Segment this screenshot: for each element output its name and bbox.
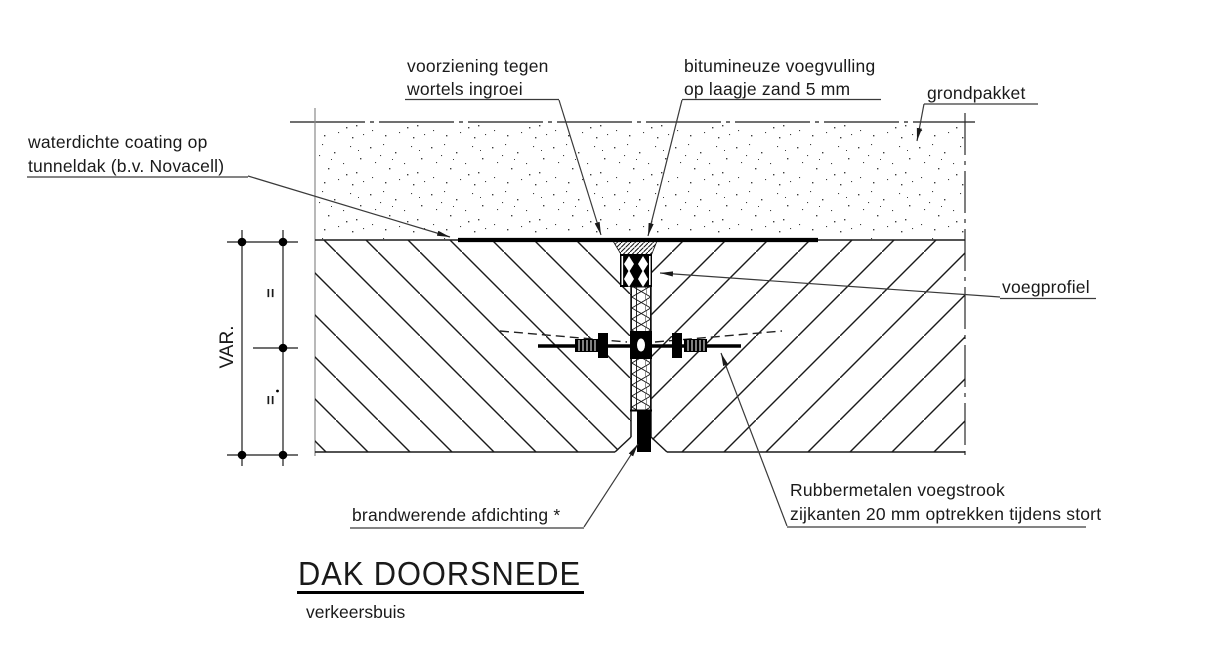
bolt-nut-right [672, 333, 682, 358]
svg-text:grondpakket: grondpakket [927, 83, 1026, 103]
svg-text:voegprofiel: voegprofiel [1002, 277, 1090, 297]
label-bitumen: bitumineuze voegvulling op laagje zand 5… [682, 56, 881, 100]
svg-text:bitumineuze voegvulling: bitumineuze voegvulling [684, 56, 875, 76]
dimension-var: VAR. = = [217, 230, 298, 466]
label-joint-profile: voegprofiel [1000, 277, 1096, 299]
equal-mark-bottom: = [261, 395, 278, 404]
clamp-hole [637, 339, 645, 352]
fire-seal [630, 411, 652, 453]
svg-text:op laagje zand 5 mm: op laagje zand 5 mm [684, 79, 850, 99]
svg-text:wortels ingroei: wortels ingroei [406, 79, 523, 99]
technical-drawing-roof-section: VAR. = = voorziening tegen wortels ingro… [0, 0, 1217, 659]
title-block: DAK DOORSNEDE verkeersbuis [297, 555, 584, 622]
label-fire-seal: brandwerende afdichting * [350, 505, 584, 528]
svg-text:zijkanten 20 mm optrekken tijd: zijkanten 20 mm optrekken tijdens stort [790, 504, 1101, 524]
dimension-var-label: VAR. [217, 326, 238, 369]
label-rubber-strip: Rubbermetalen voegstrook zijkanten 20 mm… [787, 480, 1101, 527]
label-waterproof-coating: waterdichte coating op tunneldak (b.v. N… [27, 132, 248, 177]
label-ground-package: grondpakket [924, 83, 1038, 104]
bolt-nut-left [598, 333, 608, 358]
svg-text:brandwerende afdichting *: brandwerende afdichting * [352, 505, 560, 525]
equal-mark-top: = [261, 288, 278, 297]
leader-fire-seal [584, 444, 638, 527]
svg-text:tunneldak (b.v. Novacell): tunneldak (b.v. Novacell) [28, 156, 224, 176]
label-root-barrier: voorziening tegen wortels ingroei [405, 56, 559, 100]
svg-text:voorziening tegen: voorziening tegen [407, 56, 549, 76]
svg-text:waterdichte coating op: waterdichte coating op [27, 132, 208, 152]
drawing-canvas: VAR. = = voorziening tegen wortels ingro… [0, 0, 1217, 659]
joint-profile-block [620, 254, 652, 287]
drawing-title: DAK DOORSNEDE [298, 555, 581, 592]
svg-text:Rubbermetalen voegstrook: Rubbermetalen voegstrook [790, 480, 1005, 500]
drawing-subtitle: verkeersbuis [306, 602, 405, 622]
